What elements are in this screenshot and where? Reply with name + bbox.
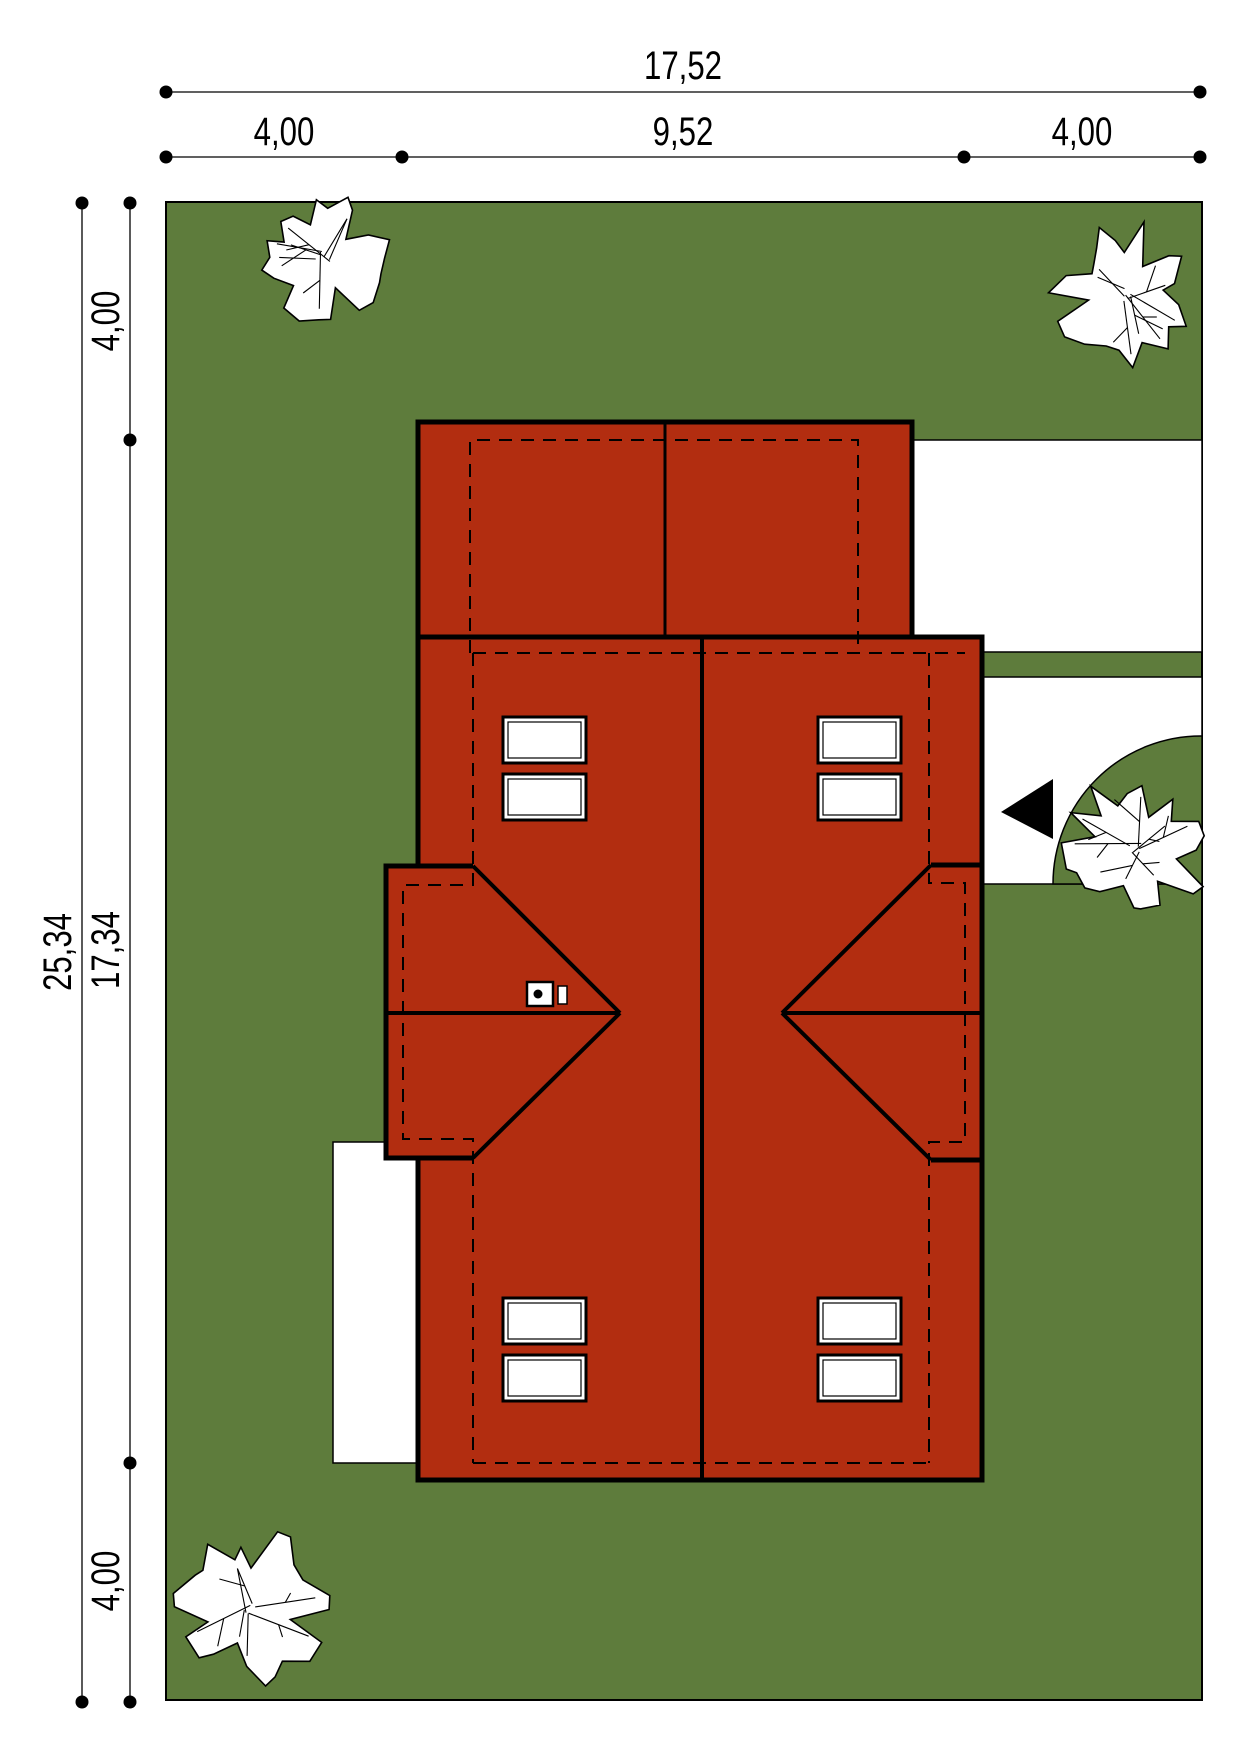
chimney-flue [534,990,543,999]
driveway-upper [912,440,1202,652]
dim-dot [396,151,409,164]
roof-window-frame [503,774,586,820]
dim-dot [124,197,137,210]
roof-window-frame [818,1298,901,1344]
dim-dot [124,434,137,447]
dim-dot [1194,151,1207,164]
roof-vent [558,986,567,1004]
roof-window [503,1298,586,1344]
dim-dot [958,151,971,164]
roof-window [818,717,901,763]
roof-window-frame [818,1355,901,1401]
roof-window [818,1298,901,1344]
dimension-label: 4,00 [254,109,315,154]
dimension-label: 4,00 [83,1551,128,1612]
roof-window [503,774,586,820]
dim-dot [76,197,89,210]
roof-window-frame [503,717,586,763]
roof-window-frame [818,717,901,763]
roof-window-frame [818,774,901,820]
dim-dot [76,1696,89,1709]
roof-window-frame [503,1355,586,1401]
roof-window [503,717,586,763]
site-plan: 17,524,009,524,0025,344,0017,344,00 [0,0,1240,1754]
dimension-label: 4,00 [1052,109,1113,154]
roof-window [818,774,901,820]
site-plan-canvas: 17,524,009,524,0025,344,0017,344,00 [0,0,1240,1754]
dim-dot [124,1457,137,1470]
roof-window [503,1355,586,1401]
terrace [333,1142,421,1463]
dim-dot [1194,86,1207,99]
dimension-label: 4,00 [83,291,128,352]
dimension-label: 17,52 [644,43,722,88]
roof-window-frame [503,1298,586,1344]
dimension-label: 9,52 [653,109,714,154]
dimension-label: 17,34 [83,911,128,989]
dim-dot [124,1696,137,1709]
roof-window [818,1355,901,1401]
dimension-label: 25,34 [35,913,80,991]
dim-dot [160,86,173,99]
dim-dot [160,151,173,164]
